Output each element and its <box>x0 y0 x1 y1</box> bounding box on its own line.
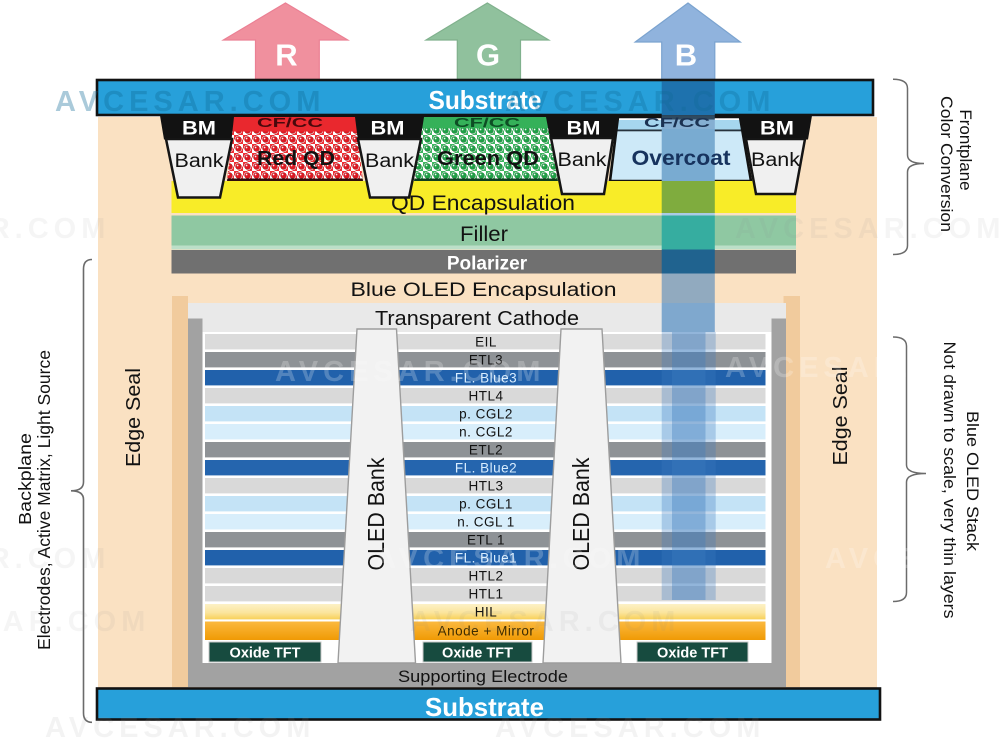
svg-text:HTL3: HTL3 <box>468 478 503 493</box>
svg-text:G: G <box>476 38 500 73</box>
svg-text:EIL: EIL <box>475 334 497 349</box>
svg-text:AVCESAR.COM: AVCESAR.COM <box>735 213 1000 245</box>
svg-text:Bank: Bank <box>175 151 225 172</box>
svg-text:n. CGL2: n. CGL2 <box>459 424 513 439</box>
svg-text:Oxide TFT: Oxide TFT <box>442 646 513 662</box>
svg-text:p. CGL2: p. CGL2 <box>459 406 513 421</box>
svg-text:AVCESAR.COM: AVCESAR.COM <box>375 543 645 575</box>
svg-text:Blue OLED Stack: Blue OLED Stack <box>963 411 982 552</box>
svg-text:Electrodes, Active Matrix, Lig: Electrodes, Active Matrix, Light Source <box>34 350 54 650</box>
svg-text:B: B <box>675 38 697 73</box>
svg-text:Bank: Bank <box>558 150 608 171</box>
svg-text:Frontplane: Frontplane <box>956 109 975 190</box>
svg-text:AVCESAR.COM: AVCESAR.COM <box>410 606 680 638</box>
svg-text:AVCESAR.COM: AVCESAR.COM <box>825 543 1000 575</box>
svg-text:Polarizer: Polarizer <box>447 254 528 275</box>
svg-text:Green QD: Green QD <box>437 148 539 170</box>
svg-text:HTL4: HTL4 <box>468 388 503 403</box>
svg-text:AVCESAR.COM: AVCESAR.COM <box>505 86 775 118</box>
svg-text:Overcoat: Overcoat <box>632 147 731 170</box>
svg-text:Filler: Filler <box>460 223 508 246</box>
svg-text:BM: BM <box>182 119 216 140</box>
svg-text:p. CGL1: p. CGL1 <box>459 496 513 511</box>
svg-text:Bank: Bank <box>365 151 415 172</box>
svg-text:AVCESAR.COM: AVCESAR.COM <box>45 712 315 741</box>
svg-text:HTL1: HTL1 <box>468 586 503 601</box>
svg-text:BM: BM <box>760 119 794 140</box>
svg-text:Supporting Electrode: Supporting Electrode <box>398 668 568 686</box>
svg-text:AVCESAR.COM: AVCESAR.COM <box>495 712 765 741</box>
svg-text:Color Conversion: Color Conversion <box>937 96 956 232</box>
svg-text:BM: BM <box>567 119 601 140</box>
svg-text:Oxide TFT: Oxide TFT <box>657 646 728 662</box>
svg-text:Edge Seal: Edge Seal <box>123 368 145 467</box>
svg-text:AVCESAR.COM: AVCESAR.COM <box>0 213 110 245</box>
svg-text:Bank: Bank <box>751 150 801 171</box>
svg-text:AVCESAR.COM: AVCESAR.COM <box>725 352 995 384</box>
svg-text:n. CGL 1: n. CGL 1 <box>457 514 515 529</box>
svg-text:BM: BM <box>371 119 405 140</box>
svg-text:FL. Blue2: FL. Blue2 <box>455 460 517 475</box>
svg-text:Transparent Cathode: Transparent Cathode <box>375 307 579 330</box>
svg-text:R: R <box>275 38 297 73</box>
svg-text:QD Encapsulation: QD Encapsulation <box>391 192 575 215</box>
svg-text:AVCESAR.COM: AVCESAR.COM <box>275 356 545 388</box>
svg-text:Blue OLED Encapsulation: Blue OLED Encapsulation <box>351 280 617 301</box>
svg-text:AVCESAR.COM: AVCESAR.COM <box>0 543 110 575</box>
svg-text:AVCESAR.COM: AVCESAR.COM <box>0 606 150 638</box>
svg-text:AVCESAR.COM: AVCESAR.COM <box>55 86 325 118</box>
svg-text:Red QD: Red QD <box>257 148 335 170</box>
svg-text:ETL2: ETL2 <box>469 442 503 457</box>
svg-text:Oxide TFT: Oxide TFT <box>230 646 301 662</box>
svg-text:Backplane: Backplane <box>15 433 35 525</box>
